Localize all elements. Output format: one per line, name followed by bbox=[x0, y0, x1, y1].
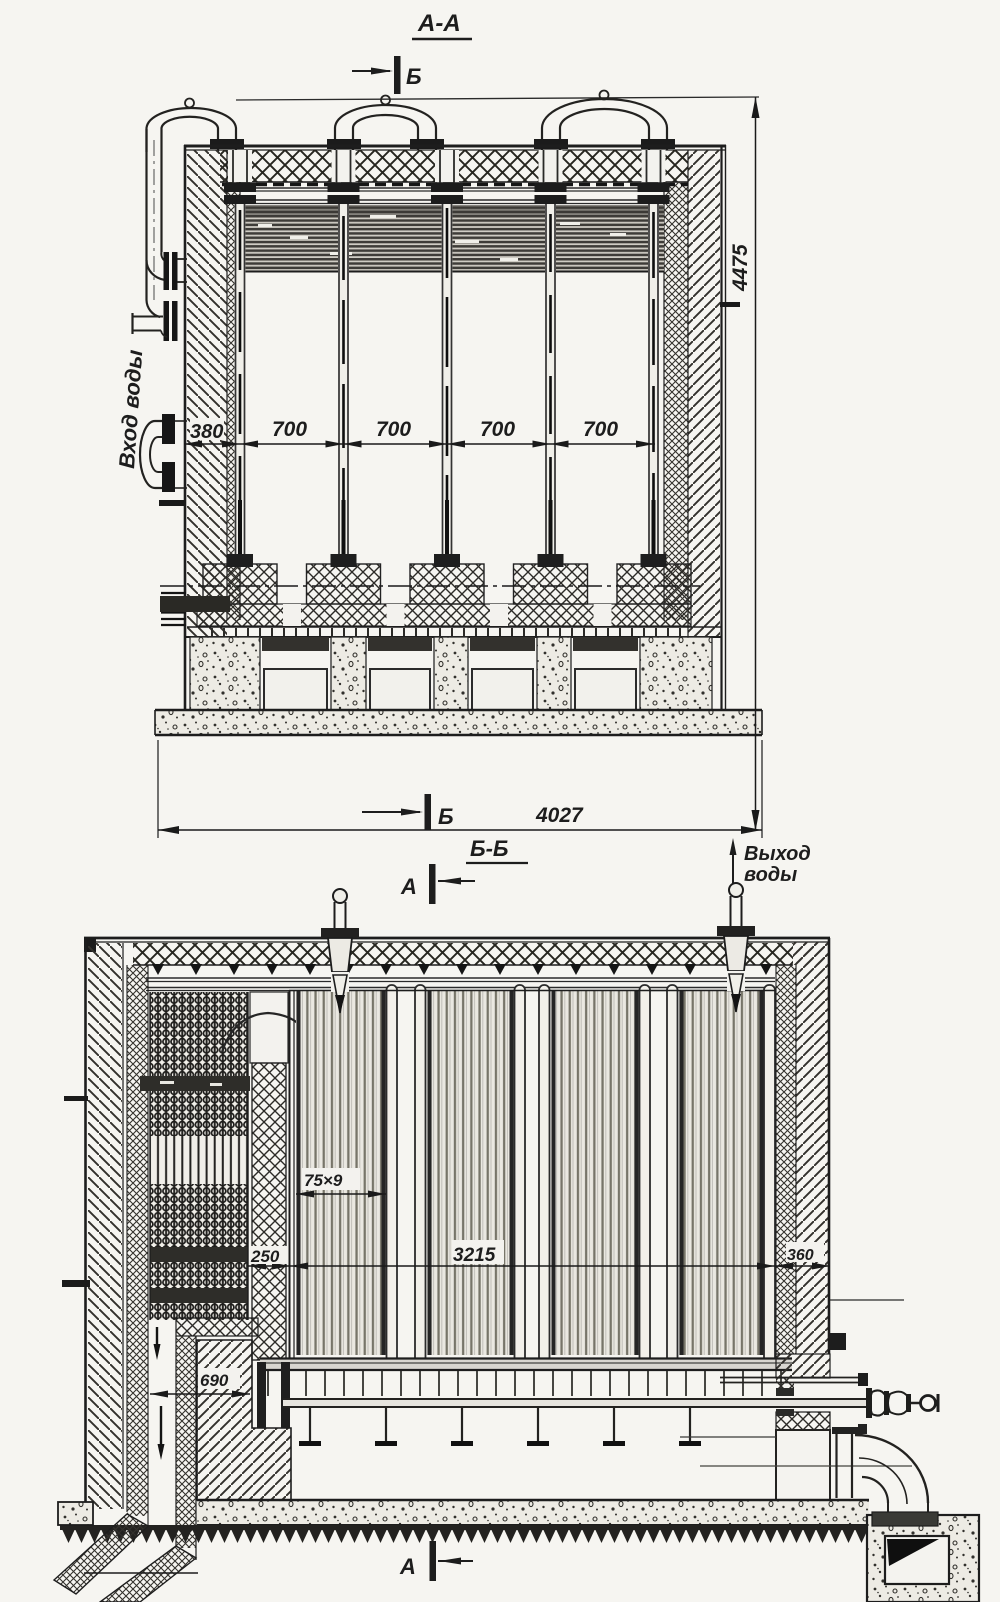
svg-text:4027: 4027 bbox=[535, 804, 584, 827]
svg-text:воды: воды bbox=[744, 864, 797, 886]
svg-text:360: 360 bbox=[787, 1247, 814, 1264]
svg-text:250: 250 bbox=[250, 1247, 280, 1266]
svg-text:380: 380 bbox=[190, 421, 223, 443]
svg-text:3215: 3215 bbox=[453, 1245, 496, 1266]
svg-text:700: 700 bbox=[272, 418, 307, 441]
svg-text:Б-Б: Б-Б bbox=[470, 836, 508, 861]
svg-text:75×9: 75×9 bbox=[304, 1171, 343, 1190]
svg-text:700: 700 bbox=[480, 418, 515, 441]
svg-text:А-А: А-А bbox=[417, 10, 461, 37]
svg-text:700: 700 bbox=[583, 418, 618, 441]
svg-text:Выход: Выход bbox=[744, 843, 811, 865]
svg-text:690: 690 bbox=[200, 1371, 229, 1390]
svg-text:Б: Б bbox=[438, 804, 454, 829]
svg-text:Б: Б bbox=[406, 64, 422, 89]
svg-text:А: А bbox=[399, 1554, 416, 1579]
svg-text:А: А bbox=[400, 874, 417, 899]
svg-text:4475: 4475 bbox=[729, 244, 752, 292]
svg-text:700: 700 bbox=[376, 418, 411, 441]
